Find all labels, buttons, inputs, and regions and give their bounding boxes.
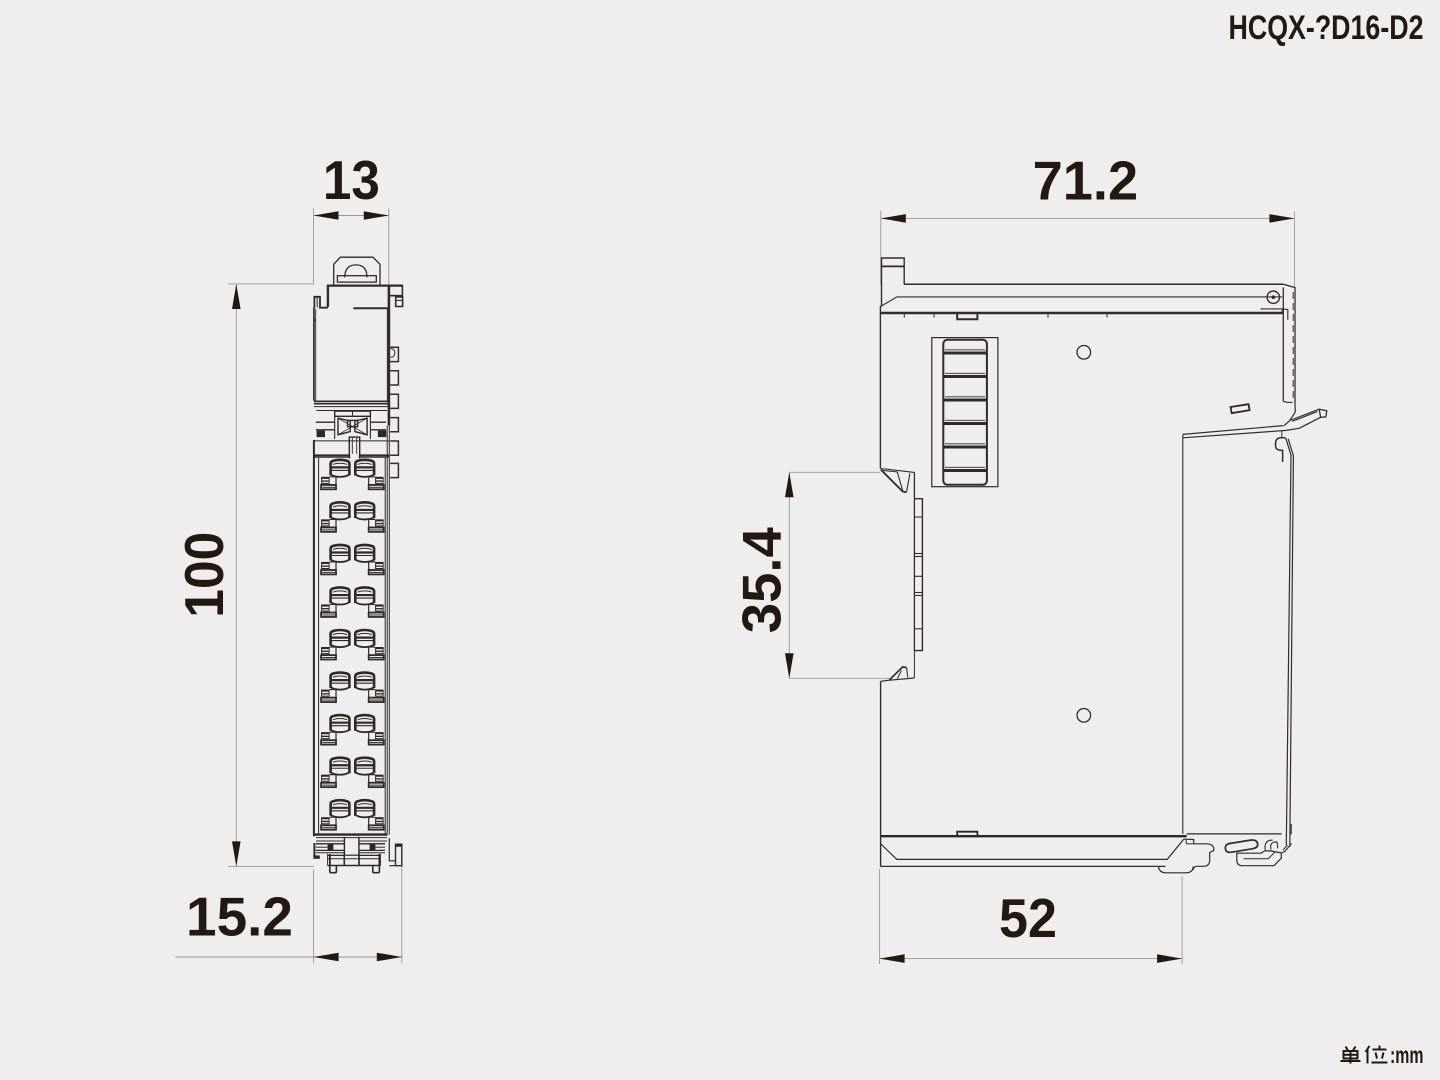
svg-text:71.2: 71.2 [1033, 150, 1139, 212]
svg-text:15.2: 15.2 [186, 885, 293, 947]
svg-text:35.4: 35.4 [731, 527, 793, 633]
svg-text::mm: :mm [1390, 1042, 1424, 1068]
svg-text:13: 13 [323, 149, 380, 211]
svg-text:HCQX-?D16-D2: HCQX-?D16-D2 [1229, 9, 1424, 47]
svg-text:52: 52 [999, 887, 1057, 949]
svg-text:100: 100 [173, 532, 235, 618]
